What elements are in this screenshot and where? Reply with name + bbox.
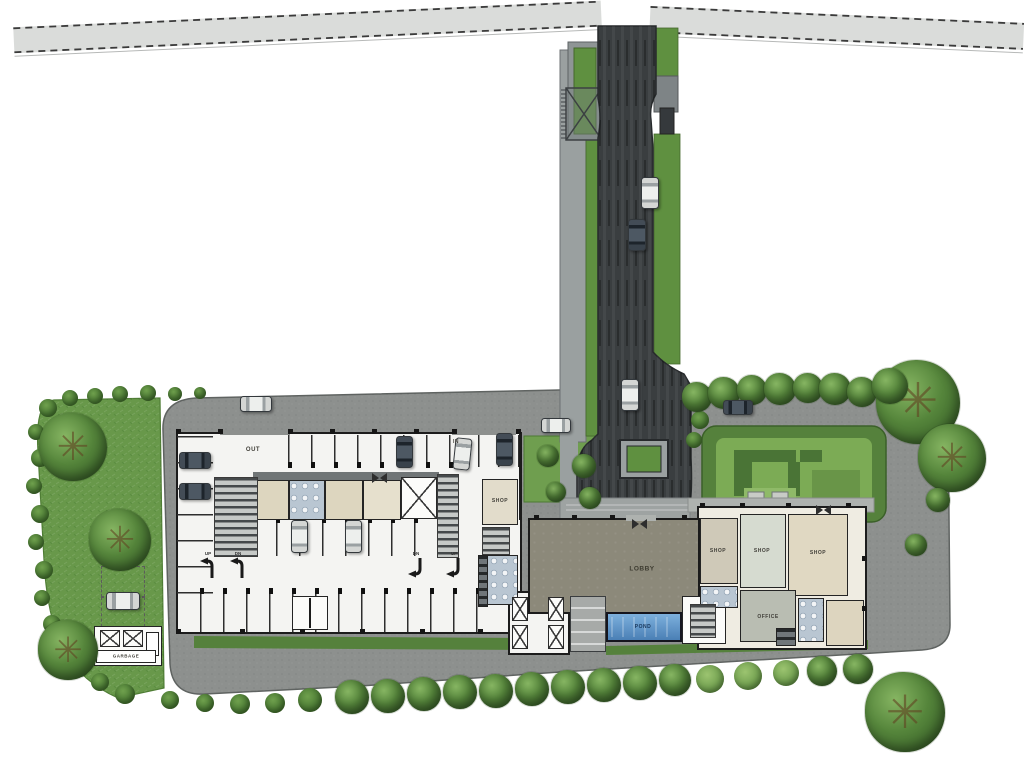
bush-icon: [26, 478, 42, 494]
label-pond: POND: [635, 624, 651, 630]
bush-icon: [28, 534, 44, 550]
up-ramp-arrow-icon: [444, 557, 464, 579]
wall-column: [176, 429, 181, 434]
down-ramp-arrow-icon: [406, 557, 426, 579]
car-icon: [541, 418, 571, 433]
tree-icon: [551, 670, 585, 704]
core-room: [325, 480, 363, 520]
label-shop: SHOP: [710, 548, 726, 554]
hedge-band-left: [194, 636, 525, 650]
stairs: [478, 555, 488, 607]
tree-icon: [905, 534, 927, 556]
bush-icon: [696, 665, 724, 693]
elevator: [548, 625, 564, 649]
bush-icon: [31, 505, 49, 523]
back-room: [826, 600, 864, 646]
label-shop: SHOP: [754, 548, 770, 554]
wall-column: [682, 515, 687, 520]
bush-icon: [734, 662, 762, 690]
wall-column: [360, 629, 365, 634]
public-road-right: [649, 6, 1024, 53]
elevator: [512, 625, 528, 649]
wall-column: [240, 629, 245, 634]
wall-column: [420, 629, 425, 634]
tree-icon: [872, 368, 908, 404]
down-ramp-arrow-icon: [228, 557, 248, 579]
label-office: OFFICE: [757, 614, 778, 620]
label-in: IN: [453, 439, 459, 445]
car-icon: [179, 483, 211, 500]
wall-column: [740, 503, 745, 508]
bush-icon: [115, 684, 135, 704]
ramp-down: DN: [404, 551, 428, 585]
tree-icon: [38, 620, 98, 680]
restroom: [798, 598, 824, 642]
stairs: [482, 527, 510, 555]
bush-icon: [196, 694, 214, 712]
entry-steps: [570, 596, 606, 652]
elevator: [512, 597, 528, 621]
bush-icon: [112, 386, 128, 402]
core-restroom: [289, 480, 325, 520]
ramp-label: UP: [451, 551, 457, 556]
tree-icon: [926, 488, 950, 512]
stairs: [776, 628, 796, 646]
bush-icon: [686, 432, 702, 448]
bush-icon: [230, 694, 250, 714]
site-plan-canvas: UP DN DN UP OUT I: [0, 0, 1024, 765]
wall-column: [288, 429, 293, 434]
wall-column: [846, 503, 851, 508]
wall-column: [786, 503, 791, 508]
bush-icon: [773, 660, 799, 686]
tree-icon: [843, 654, 873, 684]
tree-icon: [479, 674, 513, 708]
core-room: [255, 480, 289, 520]
tree-icon: [89, 509, 151, 571]
bush-icon: [265, 693, 285, 713]
bush-icon: [35, 561, 53, 579]
label-out: OUT: [246, 447, 260, 453]
tree-icon: [443, 675, 477, 709]
wall-column: [700, 503, 705, 508]
parking-stalls-bottom-row: [200, 588, 478, 632]
wall-column: [534, 515, 539, 520]
tree-icon: [371, 679, 405, 713]
door-swing-icon: [372, 473, 387, 484]
bush-icon: [194, 387, 206, 399]
bush-icon: [34, 590, 50, 606]
wall-column: [300, 629, 305, 634]
bush-icon: [140, 385, 156, 401]
wall-column: [372, 429, 377, 434]
tree-icon: [623, 666, 657, 700]
bush-icon: [39, 399, 57, 417]
parking-stalls-top-row: [288, 435, 454, 468]
tree-icon: [659, 664, 691, 696]
tree-icon: [335, 680, 369, 714]
wall-column: [330, 429, 335, 434]
wall-column: [572, 515, 577, 520]
tree-icon: [39, 413, 107, 481]
public-road-left: [13, 1, 602, 57]
elevator: [548, 597, 564, 621]
ramp-up: UP: [442, 551, 466, 585]
wall-column: [478, 629, 483, 634]
label-garbage: GARBAGE: [113, 654, 140, 659]
tree-icon: [572, 454, 596, 478]
bush-icon: [691, 411, 709, 429]
tree-icon: [579, 487, 601, 509]
garbage-bin-icon: [100, 630, 120, 647]
entry-lane-wall: [519, 432, 521, 520]
car-icon: [345, 520, 362, 553]
ramp-label: UP: [205, 551, 211, 556]
bush-icon: [168, 387, 182, 401]
bush-icon: [298, 688, 322, 712]
tree-icon: [537, 445, 559, 467]
dropoff-planter: [620, 440, 668, 478]
label-lobby: LOBBY: [629, 566, 654, 573]
wall-column: [218, 429, 223, 434]
car-icon: [179, 452, 211, 469]
driveway-green-right: [654, 134, 680, 364]
garbage-bin-icon: [123, 630, 143, 647]
car-icon: [396, 436, 413, 468]
ramp-slope-left: [214, 477, 258, 557]
tree-icon: [587, 668, 621, 702]
car-icon: [628, 219, 646, 251]
wall-column: [862, 606, 867, 611]
car-icon: [106, 592, 140, 610]
core-room: [363, 480, 401, 520]
door-swing-icon: [816, 505, 831, 516]
car-icon: [641, 177, 659, 209]
wall-column: [452, 429, 457, 434]
up-ramp-arrow-icon: [198, 557, 218, 579]
tree-icon: [865, 672, 945, 752]
service-shaft: [401, 477, 437, 519]
ramp-up: UP: [196, 551, 220, 585]
car-icon: [496, 433, 513, 466]
ramp-down: DN: [226, 551, 250, 585]
bush-icon: [87, 388, 103, 404]
guard-house: [654, 76, 678, 134]
tree-icon: [407, 677, 441, 711]
wall-column: [610, 515, 615, 520]
car-icon: [723, 400, 753, 415]
bush-icon: [62, 390, 78, 406]
wall-column: [862, 556, 867, 561]
wall-column: [414, 429, 419, 434]
tree-icon: [515, 672, 549, 706]
tree-icon: [918, 424, 986, 492]
label-shop: SHOP: [492, 498, 508, 504]
tree-icon: [546, 482, 566, 502]
car-icon: [240, 396, 272, 412]
bush-icon: [161, 691, 179, 709]
tree-icon: [764, 373, 796, 405]
parking-exit-opening: [220, 430, 290, 435]
ramp-label: DN: [235, 551, 242, 556]
ramp-label: DN: [413, 551, 420, 556]
label-shop: SHOP: [810, 550, 826, 556]
tree-icon: [807, 656, 837, 686]
wall-column: [516, 429, 521, 434]
bush-icon: [91, 673, 109, 691]
car-icon: [621, 379, 639, 411]
car-icon: [291, 520, 308, 553]
closet-partition: [309, 598, 311, 628]
door-swing-icon: [632, 519, 647, 530]
feature-stair-hatch: [690, 604, 716, 638]
wall-column: [176, 629, 181, 634]
ramp-slope-right: [437, 474, 459, 558]
